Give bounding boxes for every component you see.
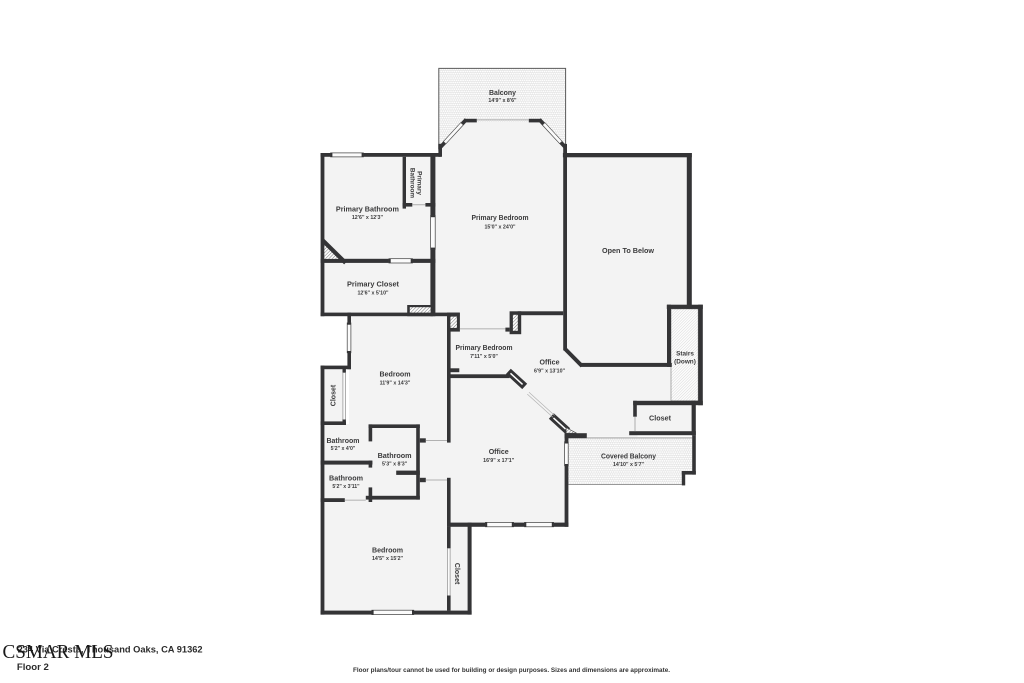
svg-text:5'2" x 3'11": 5'2" x 3'11": [332, 484, 360, 490]
svg-text:Primary Bathroom: Primary Bathroom: [336, 205, 399, 214]
svg-text:Primary Bedroom: Primary Bedroom: [472, 213, 529, 222]
svg-text:Floor plans/tour cannot be use: Floor plans/tour cannot be used for buil…: [353, 667, 670, 674]
svg-text:Balcony: Balcony: [489, 88, 516, 97]
svg-text:CSMAR MLS: CSMAR MLS: [3, 642, 114, 663]
svg-text:6'9" x 13'10": 6'9" x 13'10": [534, 369, 566, 375]
svg-text:Bedroom: Bedroom: [372, 546, 403, 555]
svg-text:Open To Below: Open To Below: [602, 246, 654, 255]
svg-text:12'6" x 12'3": 12'6" x 12'3": [352, 215, 384, 221]
svg-text:Primary: Primary: [416, 171, 423, 195]
svg-text:Office: Office: [489, 447, 509, 456]
svg-text:Bathroom: Bathroom: [409, 168, 416, 198]
svg-text:Covered Balcony: Covered Balcony: [601, 452, 656, 461]
svg-text:Primary Closet: Primary Closet: [347, 280, 400, 289]
svg-text:Bathroom: Bathroom: [329, 476, 363, 483]
svg-text:Bathroom: Bathroom: [378, 451, 412, 460]
svg-text:14'9" x 8'6": 14'9" x 8'6": [488, 98, 517, 104]
svg-text:Primary Bedroom: Primary Bedroom: [456, 345, 513, 352]
svg-text:12'6" x 5'10": 12'6" x 5'10": [357, 291, 389, 297]
svg-text:Bedroom: Bedroom: [380, 370, 411, 379]
svg-text:5'2" x 4'0": 5'2" x 4'0": [331, 446, 356, 452]
svg-text:Bathroom: Bathroom: [327, 438, 360, 445]
svg-text:16'9" x 17'1": 16'9" x 17'1": [483, 458, 515, 464]
svg-text:15'0" x 24'0": 15'0" x 24'0": [484, 225, 516, 231]
svg-text:14'10" x 5'7": 14'10" x 5'7": [613, 462, 645, 468]
svg-text:Floor 2: Floor 2: [17, 662, 49, 673]
svg-text:Closet: Closet: [649, 416, 672, 423]
svg-text:(Down): (Down): [674, 359, 696, 366]
svg-text:Closet: Closet: [330, 384, 337, 406]
svg-text:11'9" x 14'3": 11'9" x 14'3": [380, 381, 411, 387]
svg-text:7'11" x 5'0": 7'11" x 5'0": [470, 354, 498, 360]
svg-text:Stairs: Stairs: [676, 351, 694, 358]
svg-text:5'3" x 8'3": 5'3" x 8'3": [382, 462, 408, 468]
svg-text:Closet: Closet: [453, 563, 460, 585]
svg-text:14'5" x 15'2": 14'5" x 15'2": [372, 556, 404, 562]
svg-text:Office: Office: [540, 358, 560, 367]
